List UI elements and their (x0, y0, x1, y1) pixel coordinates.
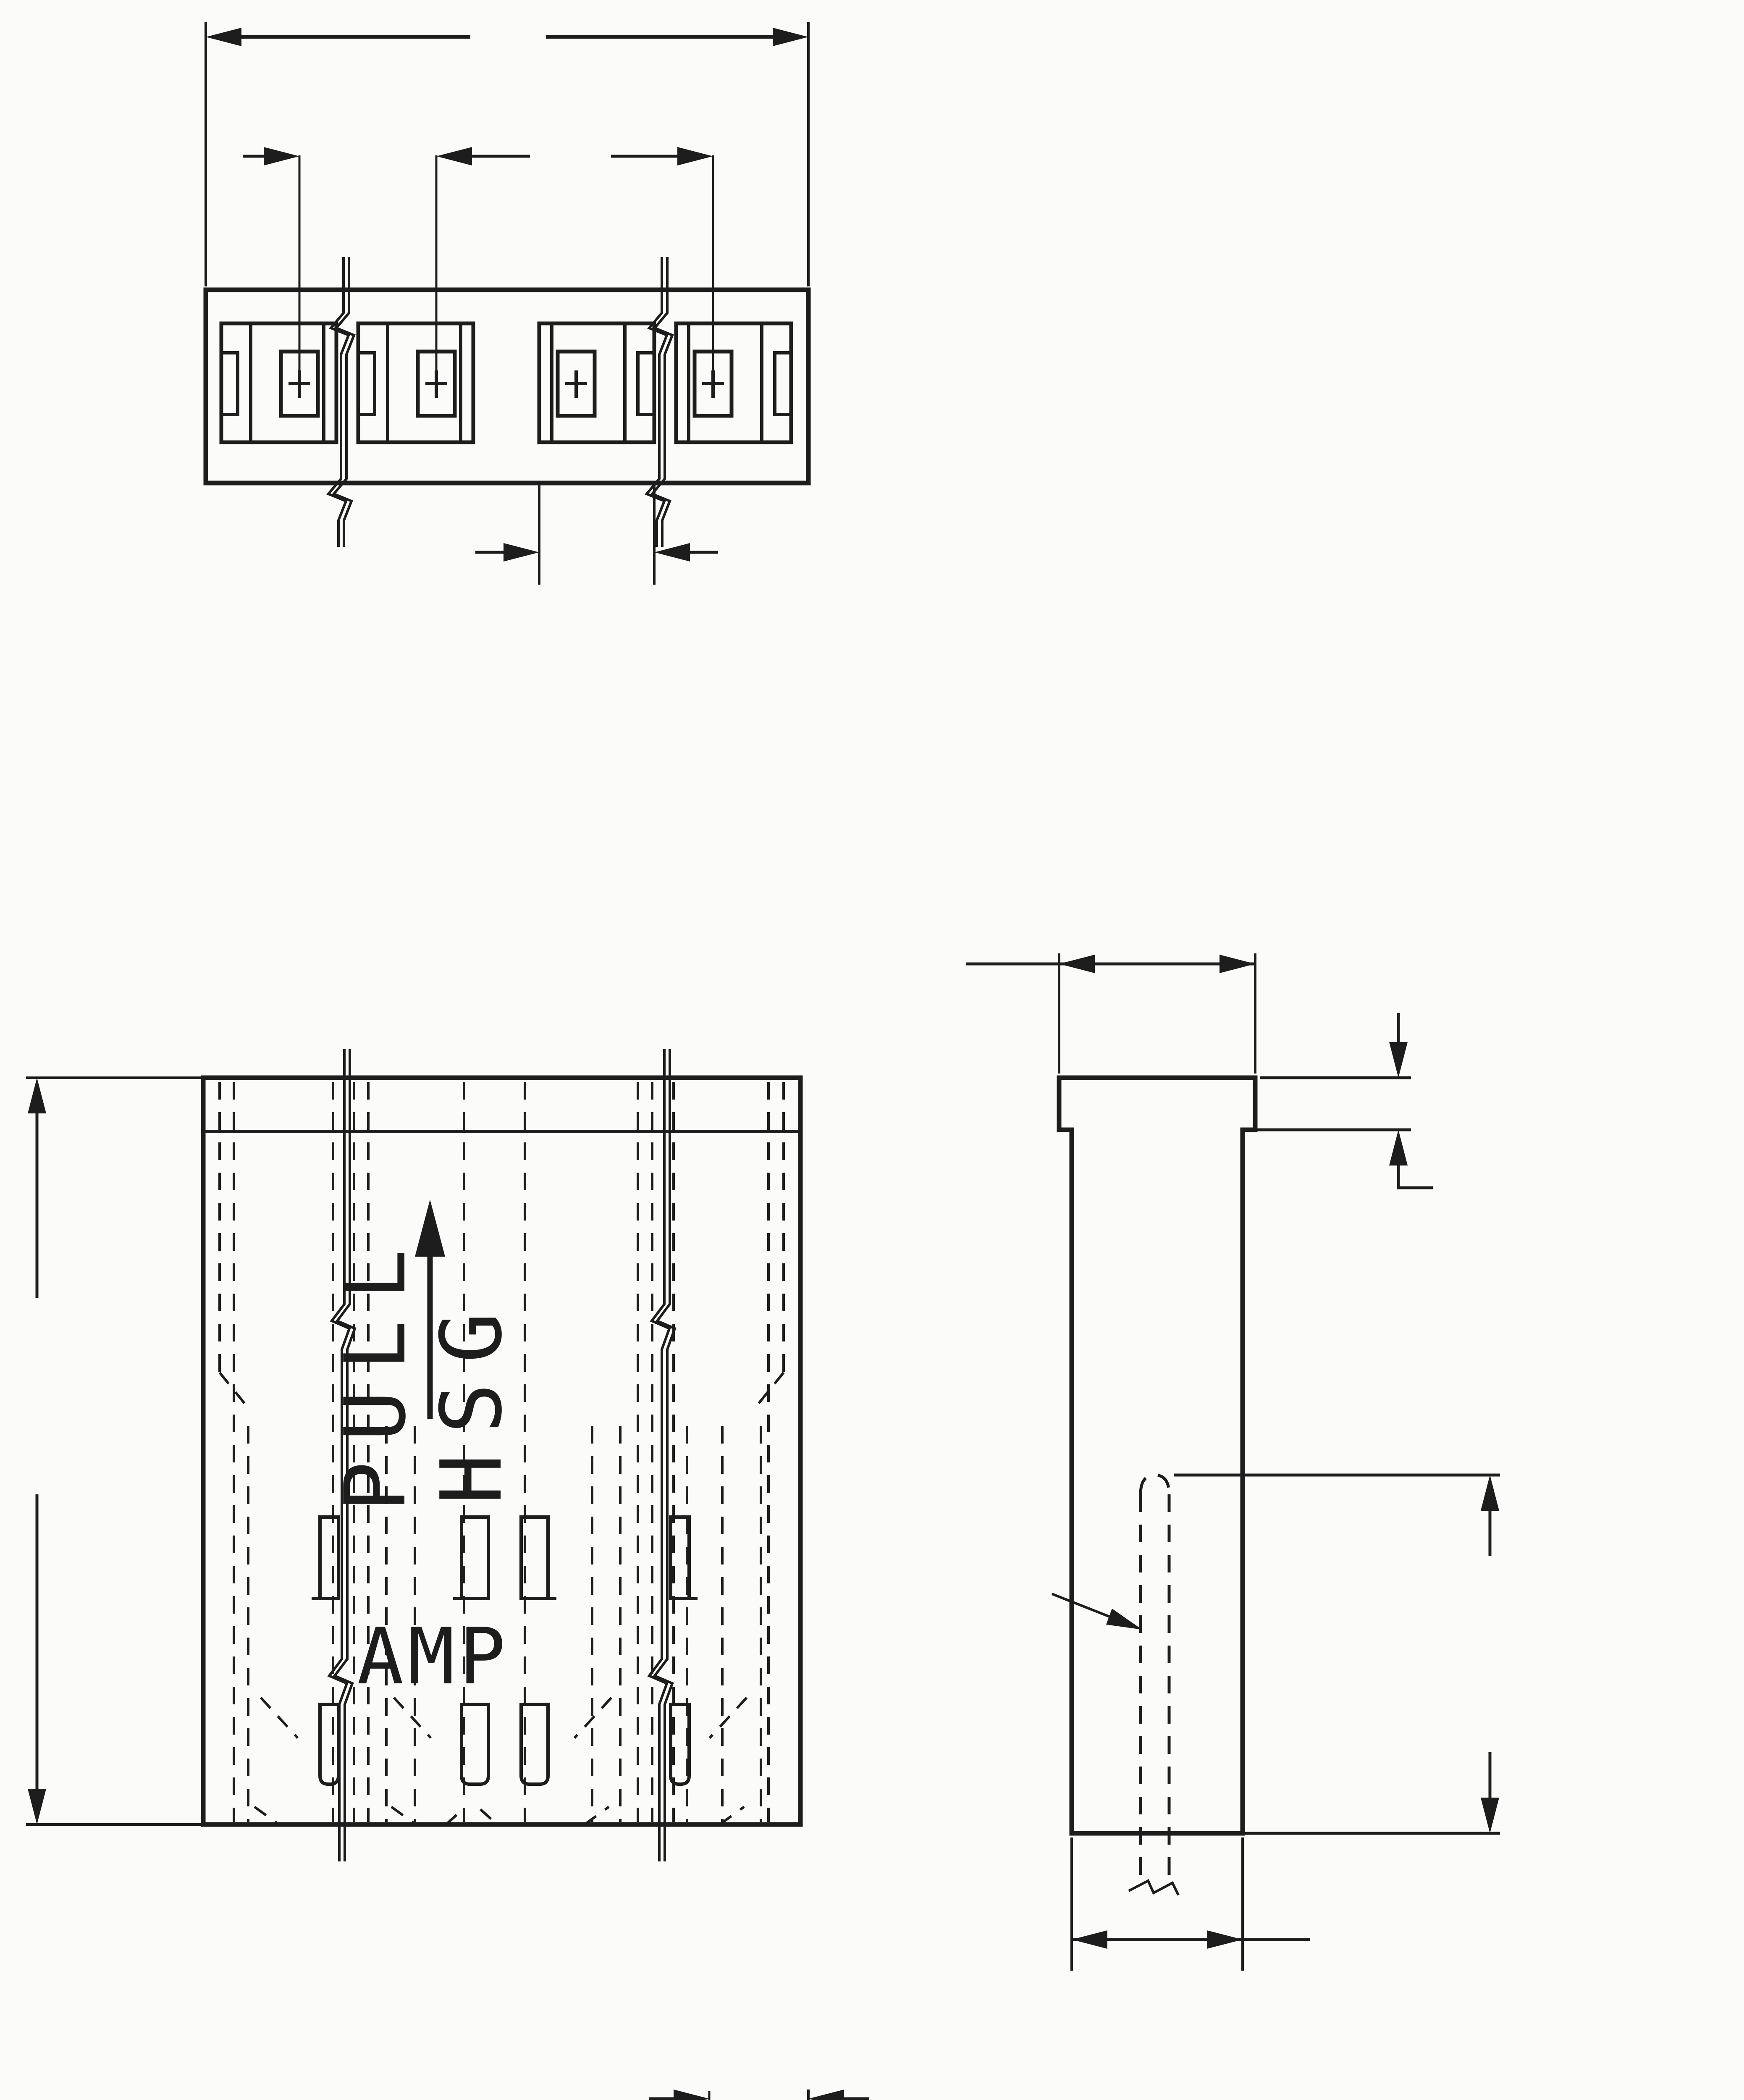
latch-slots-lower (320, 1704, 689, 1784)
top-view-centerlines (299, 155, 713, 372)
hidden-slot-lines (1141, 1475, 1169, 1877)
head-thickness-dimension (1248, 1013, 1433, 1188)
slot-depth-dimension (1174, 1475, 1500, 1833)
hsg-label: HSG (423, 1292, 521, 1504)
latch-windows-upper (312, 1517, 698, 1599)
bottom-view (202, 2089, 869, 2100)
top-view-cavities (221, 323, 791, 442)
housing-height-dimension (26, 1078, 203, 1824)
front-view: PULL HSG AMP (26, 1049, 800, 1861)
body-width-dimension (1072, 1837, 1310, 1971)
engineering-drawing: PULL HSG AMP (0, 0, 1744, 2100)
top-view-housing-outline (206, 290, 808, 483)
head-width-dimension (966, 953, 1255, 1074)
short-break-squiggle-icon (1129, 1881, 1178, 1895)
leader-arrow-icon (1052, 1594, 1142, 1630)
side-view-profile-outline (1059, 1078, 1255, 1833)
top-view (206, 22, 808, 585)
amp-brand-label: AMP (357, 1611, 510, 1702)
drawing-sheet: PULL HSG AMP (0, 0, 1744, 2100)
pull-label: PULL (327, 1229, 425, 1512)
dimension-arrowhead-icon (206, 28, 241, 46)
cavity-width-dimension (475, 483, 718, 585)
overall-width-dimension (206, 22, 808, 286)
side-view (966, 953, 1500, 1971)
dimension-arrowhead-icon (773, 28, 808, 46)
end-margin-dimension (649, 2089, 869, 2100)
break-line-icon (328, 257, 672, 547)
cavity-pitch-dimension (243, 147, 713, 165)
